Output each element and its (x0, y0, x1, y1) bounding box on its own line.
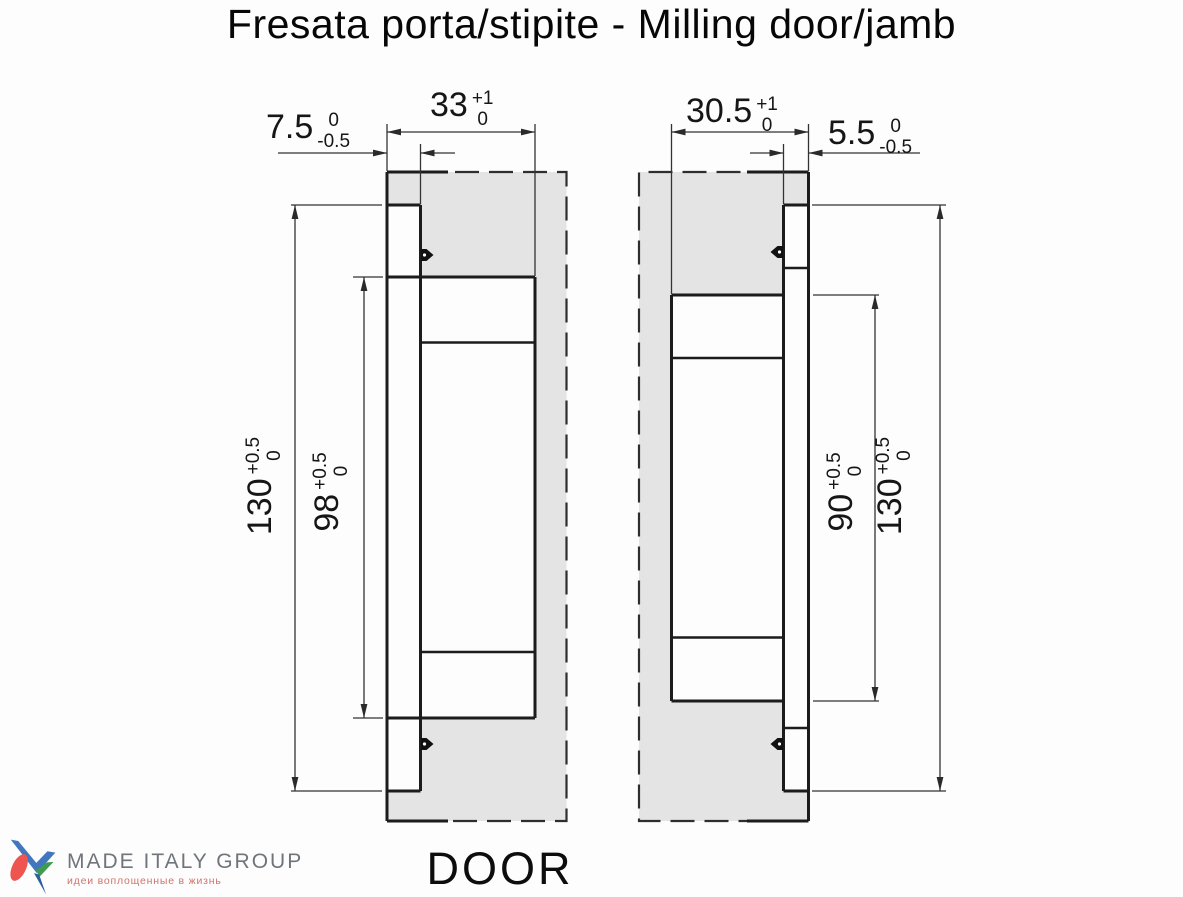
jamb-hinge-pocket (672, 295, 784, 701)
dim-tolerance: +0.5 0 (310, 452, 352, 490)
dim-door-pocket-length: 98 +0.5 0 (310, 452, 352, 531)
dim-value: 130 (873, 478, 907, 535)
dim-door-pocket-depth: 33 +1 0 (430, 88, 494, 130)
screw-hole-dot (423, 253, 426, 256)
dim-tolerance: +0.5 0 (873, 437, 915, 475)
door-side-label: DOOR (427, 843, 574, 895)
dim-tolerance: +1 0 (472, 88, 494, 130)
dim-tolerance: +0.5 0 (243, 437, 285, 475)
dim-door-outer-length: 130 +0.5 0 (243, 437, 285, 535)
dim-value: 130 (243, 478, 277, 535)
dim-value: 98 (310, 494, 344, 532)
made-italy-group-logo: MADE ITALY GROUP идеи воплощенные в жизн… (8, 838, 303, 897)
door-faceplate-recess (387, 205, 421, 791)
milling-drawing-canvas (0, 0, 1183, 897)
dim-jamb-pocket-length: 90 +0.5 0 (824, 452, 866, 531)
dim-value: 30.5 (686, 94, 752, 128)
screw-hole-dot (778, 250, 781, 253)
logo-tagline: идеи воплощенные в жизнь (67, 876, 303, 887)
dim-tolerance: 0 -0.5 (317, 110, 350, 152)
screw-hole-dot (423, 742, 426, 745)
dim-value: 90 (824, 494, 858, 532)
dim-door-edge-offset: 7.5 0 -0.5 (266, 110, 350, 152)
logo-name: MADE ITALY GROUP (67, 851, 303, 872)
dim-tolerance: 0 -0.5 (879, 116, 912, 158)
dim-tolerance: +0.5 0 (824, 452, 866, 490)
dim-value: 7.5 (266, 110, 313, 144)
screw-hole-dot (778, 742, 781, 745)
dim-tolerance: +1 0 (756, 94, 778, 136)
logo-mark-icon (8, 838, 60, 897)
milling-diagram-page: Fresata porta/stipite - Milling door/jam… (0, 0, 1183, 897)
dim-value: 33 (430, 88, 468, 122)
logo-text-block: MADE ITALY GROUP идеи воплощенные в жизн… (67, 851, 303, 887)
dim-value: 5.5 (828, 116, 875, 150)
dim-jamb-pocket-depth: 30.5 +1 0 (686, 94, 778, 136)
dim-jamb-outer-length: 130 +0.5 0 (873, 437, 915, 535)
dim-jamb-edge-offset: 5.5 0 -0.5 (828, 116, 912, 158)
jamb-faceplate-recess (784, 205, 809, 791)
